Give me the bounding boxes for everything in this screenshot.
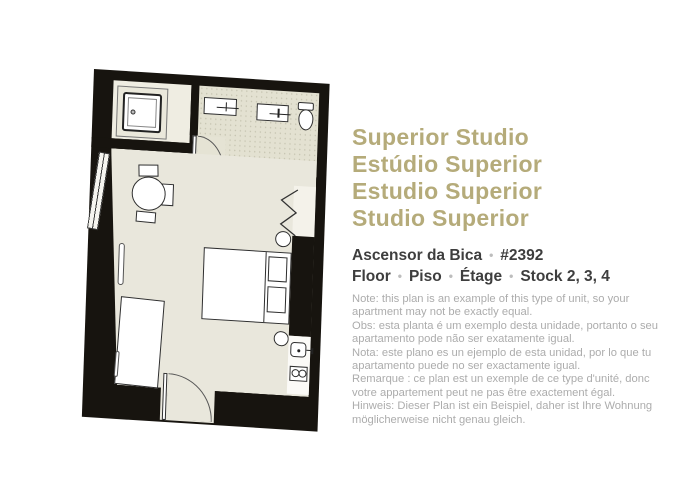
floor-plan	[82, 69, 330, 432]
property-name: Ascensor da Bica	[352, 247, 482, 264]
note-en: Note: this plan is an example of this ty…	[352, 293, 672, 320]
dot-separator: •	[398, 269, 402, 283]
sink-drain	[297, 349, 300, 352]
floor-line: Floor•Piso•Étage•Stock 2, 3, 4	[352, 266, 672, 287]
unit-number: #2392	[500, 247, 543, 264]
dot-separator: •	[489, 248, 493, 262]
chair-bottom	[136, 211, 157, 224]
dot-separator: •	[509, 269, 513, 283]
note-pt: Obs: esta planta é um exemplo desta unid…	[352, 320, 672, 347]
disclaimer-notes: Note: this plan is an example of this ty…	[352, 293, 672, 427]
note-es: Nota: este plano es un ejemplo de esta u…	[352, 347, 672, 374]
shower-tray	[122, 92, 162, 133]
faucet-line	[217, 106, 239, 109]
dot-separator: •	[449, 269, 453, 283]
page: { "colors": { "accent_title": "#b5ab7a",…	[0, 0, 700, 500]
pillow-bottom	[267, 286, 287, 313]
title-pt: Estúdio Superior	[352, 151, 672, 178]
faucet-tick	[226, 103, 228, 111]
title-fr: Studio Superior	[352, 205, 672, 232]
title-en: Superior Studio	[352, 124, 672, 151]
pillow-top	[268, 256, 288, 282]
clothes-rail	[274, 185, 300, 238]
kitchen-sink	[290, 342, 306, 358]
kitchen-counter	[287, 336, 311, 395]
floor-label-en: Floor	[352, 268, 391, 285]
info-panel: Superior Studio Estúdio Superior Estudio…	[352, 124, 672, 427]
wardrobe-handle	[114, 351, 120, 377]
faucet-line	[270, 113, 291, 116]
floor-label-pt: Piso	[409, 268, 442, 285]
faucet-tick	[278, 109, 280, 117]
two-burner-hob	[289, 366, 307, 382]
double-bed	[201, 247, 291, 324]
sink-faucet-cap	[311, 348, 313, 354]
wardrobe	[114, 296, 165, 388]
burner-right	[298, 369, 306, 377]
note-de: Hinweis: Dieser Plan ist ein Beispiel, d…	[352, 400, 672, 427]
window	[87, 151, 110, 230]
chair-top	[138, 164, 158, 176]
unit-titles: Superior Studio Estúdio Superior Estudio…	[352, 124, 672, 232]
note-fr: Remarque : ce plan est un exemple de ce …	[352, 373, 672, 400]
title-es: Estudio Superior	[352, 178, 672, 205]
wall-block-right-of-bed	[289, 236, 314, 337]
vanity-sink-left	[203, 97, 237, 116]
floor-value: Stock 2, 3, 4	[520, 268, 610, 285]
shower	[116, 85, 169, 139]
property-line: Ascensor da Bica•#2392	[352, 245, 672, 266]
vanity-sink-right	[256, 103, 289, 122]
floor-label-fr: Étage	[460, 268, 502, 285]
